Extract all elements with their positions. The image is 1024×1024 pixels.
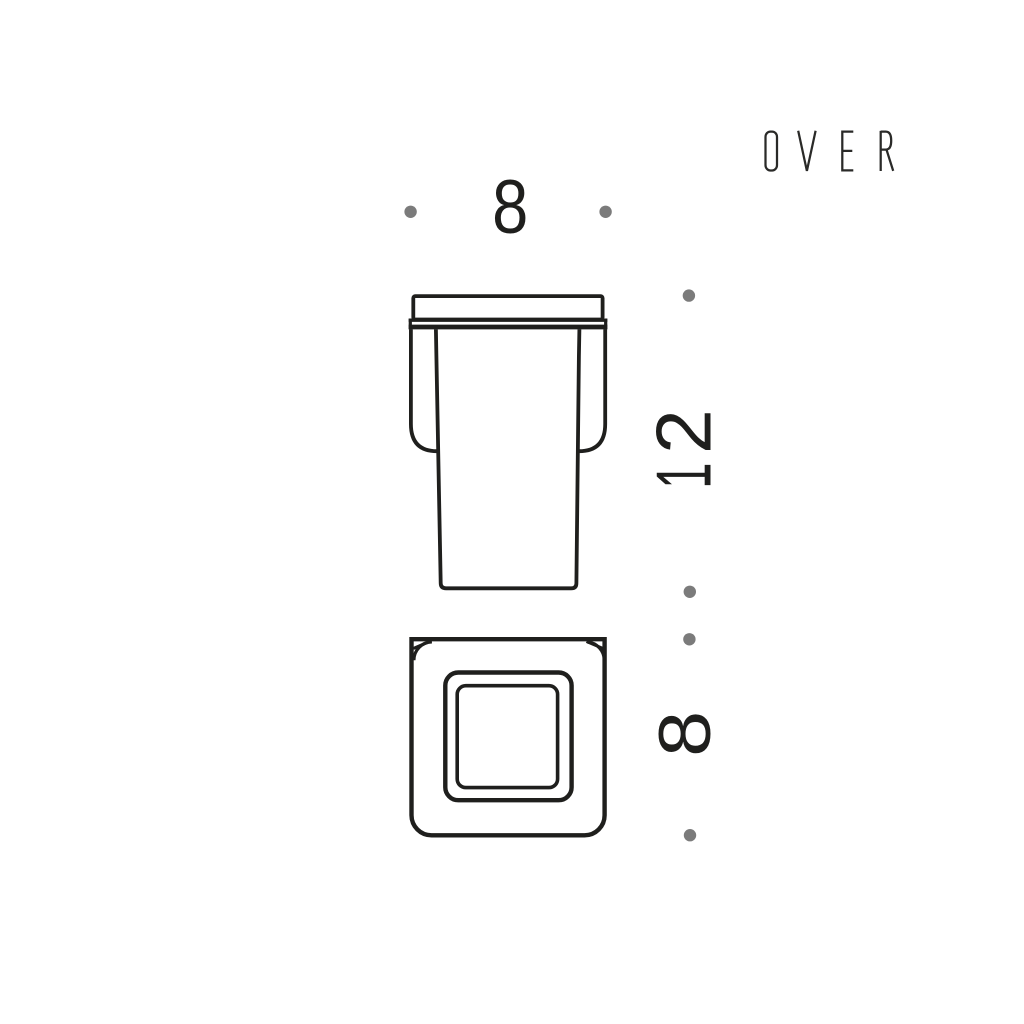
- svg-text:2: 2: [640, 409, 728, 454]
- svg-text:8: 8: [492, 164, 528, 249]
- svg-text:8: 8: [643, 711, 726, 757]
- svg-text:1: 1: [640, 463, 727, 489]
